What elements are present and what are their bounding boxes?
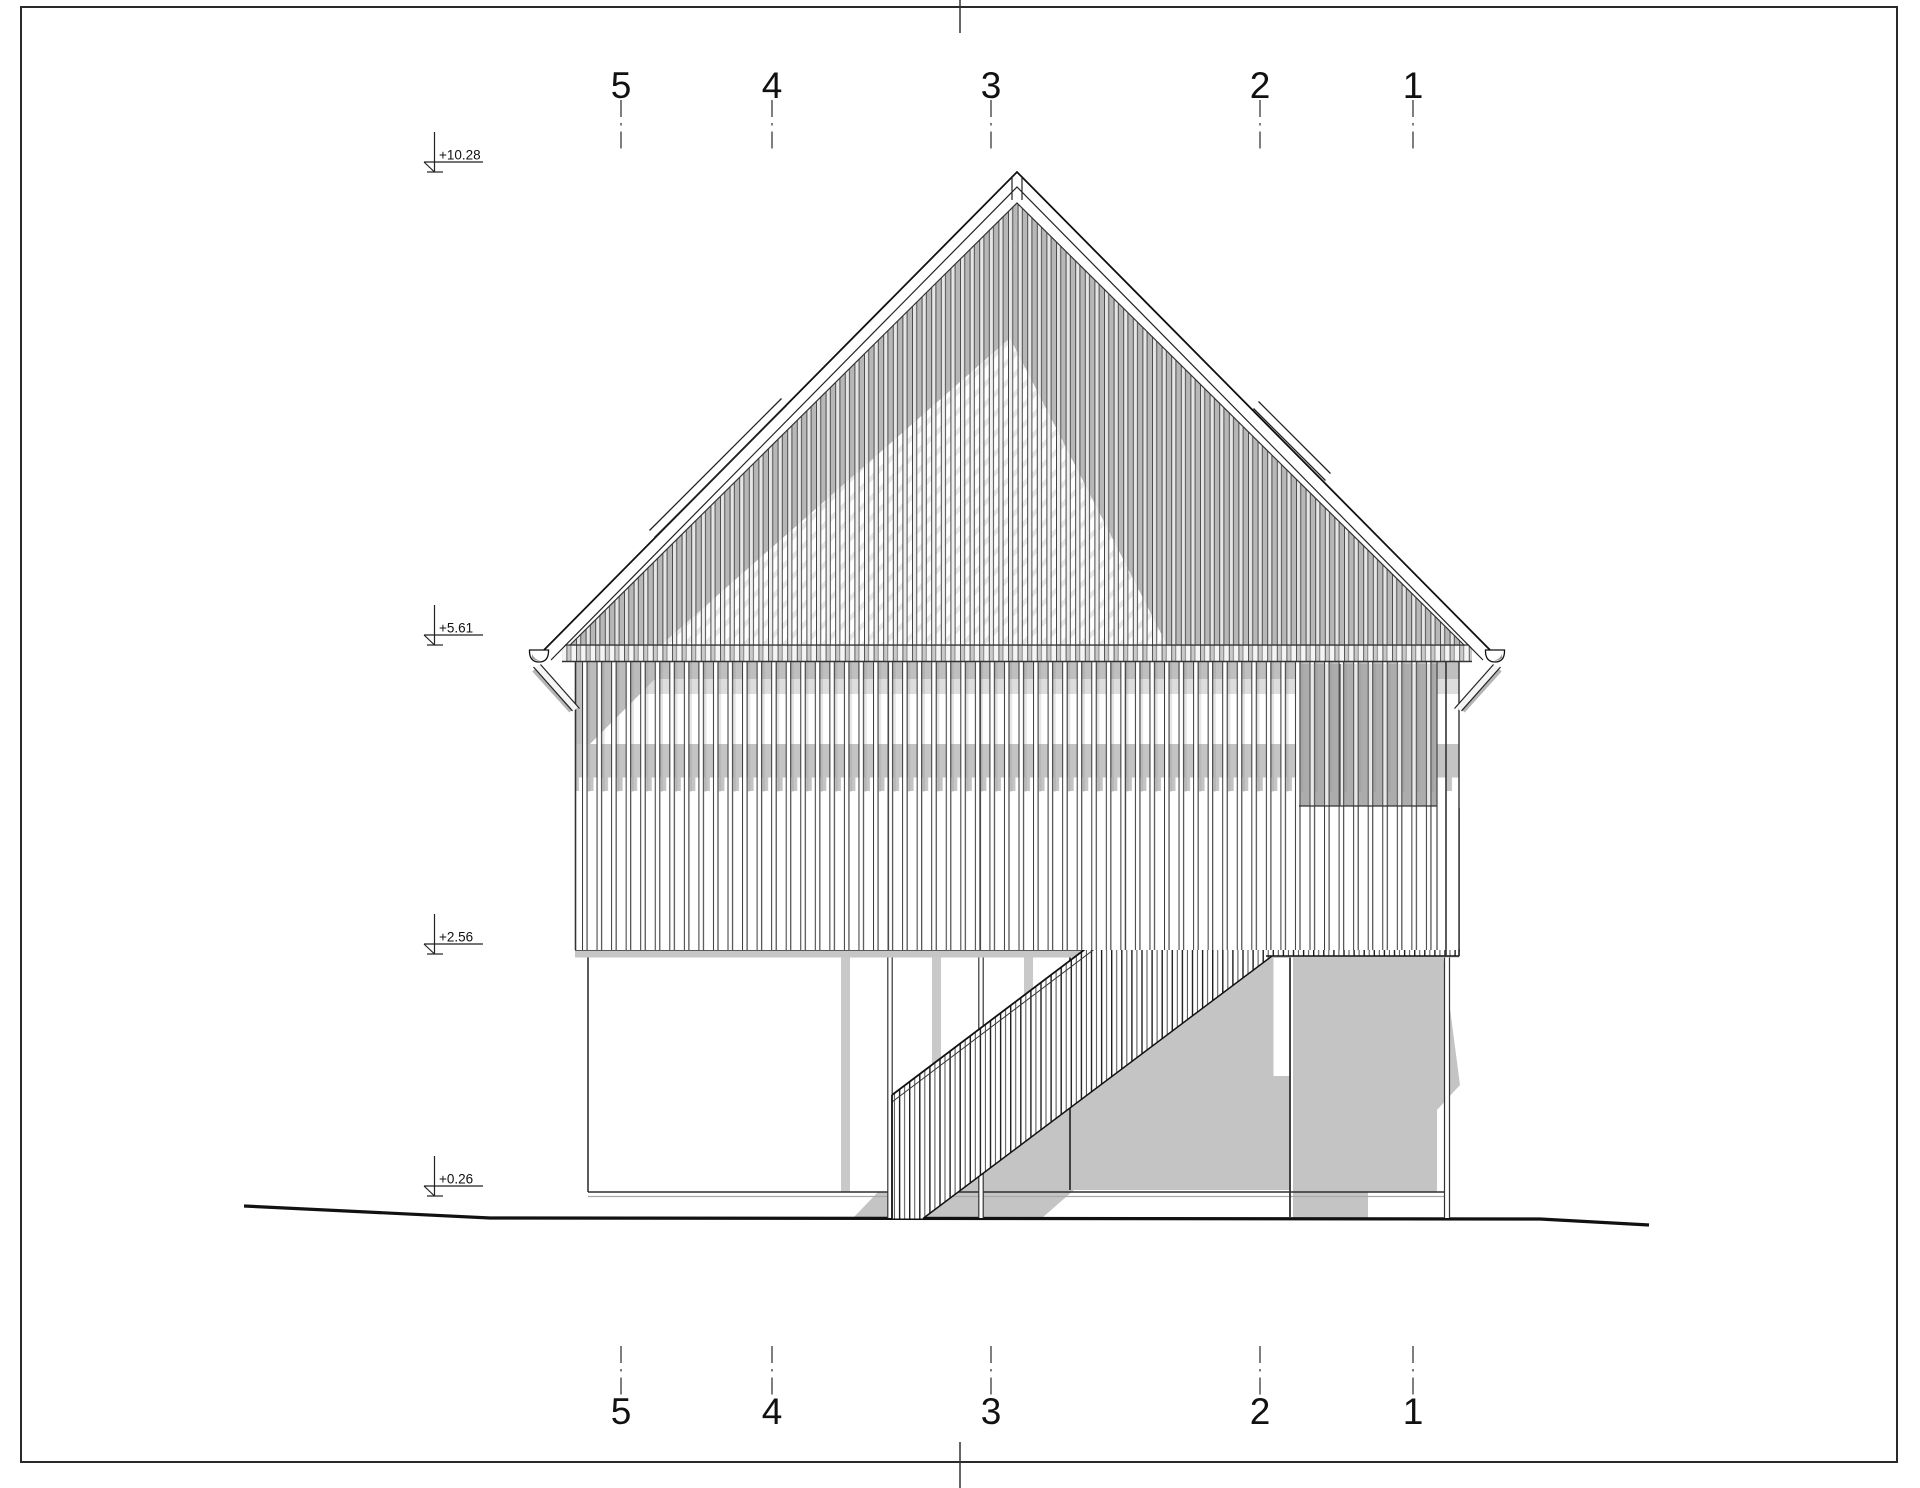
svg-text:1: 1 <box>1403 1391 1424 1432</box>
svg-text:5: 5 <box>611 1391 632 1432</box>
svg-text:+10.28: +10.28 <box>439 148 481 163</box>
svg-text:+5.61: +5.61 <box>439 621 473 636</box>
svg-text:+0.26: +0.26 <box>439 1172 473 1187</box>
svg-text:2: 2 <box>1250 1391 1271 1432</box>
svg-text:3: 3 <box>981 65 1002 106</box>
svg-text:1: 1 <box>1403 65 1424 106</box>
svg-text:+2.56: +2.56 <box>439 930 473 945</box>
svg-text:3: 3 <box>981 1391 1002 1432</box>
svg-text:2: 2 <box>1250 65 1271 106</box>
svg-text:5: 5 <box>611 65 632 106</box>
svg-text:4: 4 <box>762 1391 783 1432</box>
svg-text:4: 4 <box>762 65 783 106</box>
